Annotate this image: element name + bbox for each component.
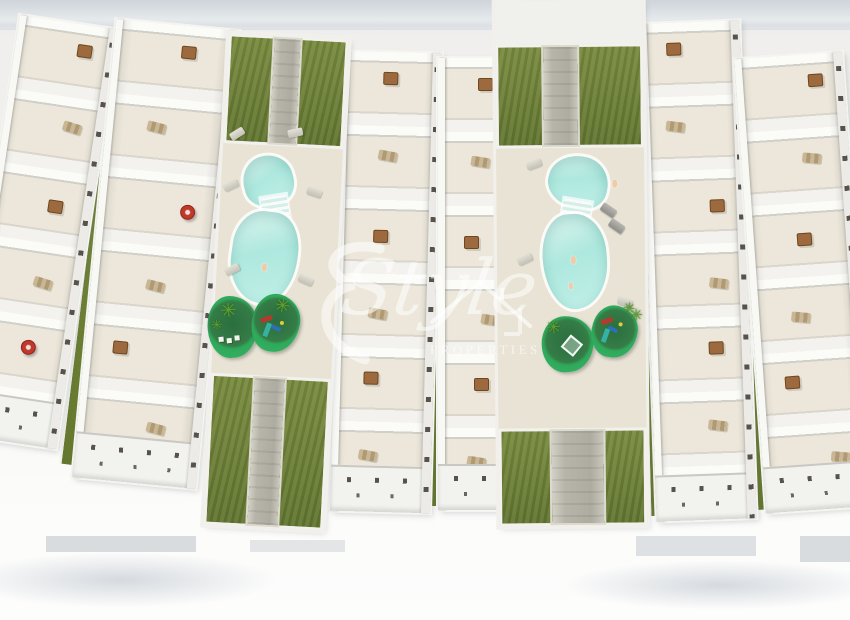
- terrace-table: [478, 78, 493, 91]
- playground-equipment: [271, 324, 282, 332]
- terrace-lounger: [709, 277, 729, 289]
- palm-tree: ✳: [219, 299, 237, 320]
- terrace-lounger: [791, 311, 811, 323]
- building-front-facade: [0, 389, 63, 449]
- courtyard-2: ✳ ✳ ✳: [495, 0, 648, 527]
- building-row-3: [330, 51, 442, 513]
- playground-equipment: [600, 317, 613, 326]
- terrace-table: [112, 340, 128, 354]
- palm-tree: ✳: [545, 319, 562, 338]
- terrace-lounger: [358, 449, 379, 462]
- terrace-table: [383, 72, 398, 85]
- sun-lounger: [599, 202, 617, 218]
- terrace-table: [708, 341, 723, 355]
- playground-equipment: [280, 321, 285, 326]
- playground-slide: [262, 322, 272, 337]
- ground-soft-shadow: [560, 560, 850, 610]
- terrace-table: [464, 236, 479, 249]
- terrace-table: [373, 230, 388, 243]
- person-on-deck: [612, 180, 617, 188]
- ground-soft-shadow: [0, 552, 280, 608]
- walkway-path: [247, 378, 285, 525]
- shadow-step: [250, 540, 345, 552]
- terrace-table: [785, 376, 801, 390]
- swimmer: [569, 282, 574, 289]
- terrace-table: [181, 46, 197, 60]
- garden-strip-bottom-1: [203, 373, 331, 531]
- sun-lounger: [525, 158, 542, 171]
- render-scene: ✳ ✳ ✳: [0, 0, 850, 620]
- shadow-step: [636, 536, 756, 556]
- parasol: [20, 339, 37, 356]
- parasol: [179, 204, 195, 220]
- pool-main-area-2: [539, 212, 610, 312]
- terrace-table: [710, 199, 725, 213]
- seat-cube: [227, 338, 232, 343]
- terrace-table: [363, 371, 378, 384]
- seat-cube: [234, 335, 239, 340]
- walkway-path: [551, 431, 604, 523]
- terrace-table: [807, 73, 823, 87]
- building-front-facade: [655, 472, 757, 521]
- sun-lounger: [608, 218, 626, 234]
- terrace-table: [666, 42, 681, 56]
- terrace-lounger: [145, 279, 166, 293]
- playground-equipment: [618, 322, 622, 326]
- palm-island-3: ✳: [539, 314, 596, 375]
- building-front-facade: [330, 465, 431, 514]
- pool-main-area-1: [225, 207, 303, 307]
- palm-tree: ✳: [211, 319, 223, 333]
- terrace-lounger: [802, 152, 822, 164]
- garden-strip-bottom-2: [498, 427, 647, 526]
- building-front-facade: [72, 431, 200, 489]
- terrace-lounger: [378, 149, 399, 162]
- sun-lounger: [297, 273, 314, 286]
- shadow-step: [46, 536, 196, 552]
- building-front-facade: [763, 460, 850, 513]
- terrace-table: [47, 199, 64, 214]
- terrace-lounger: [32, 276, 53, 291]
- terrace-lounger: [146, 120, 167, 134]
- swimmer: [261, 263, 267, 272]
- palm-tree: ✳: [273, 296, 292, 317]
- shadow-step: [800, 536, 850, 562]
- terrace-lounger: [708, 419, 728, 431]
- entrance-deck: [495, 0, 643, 47]
- terrace-lounger: [145, 422, 166, 436]
- terrace-table: [76, 44, 93, 59]
- seat-cube: [218, 337, 223, 342]
- terrace-table: [474, 378, 489, 391]
- sun-lounger: [222, 179, 239, 193]
- pergola: [561, 334, 584, 357]
- walkway-path: [543, 47, 578, 145]
- swimmer: [571, 256, 577, 264]
- terrace-lounger: [367, 307, 388, 320]
- playground-slide: [601, 328, 610, 343]
- terrace-lounger: [62, 120, 83, 135]
- terrace-table: [797, 232, 813, 246]
- terrace-lounger: [665, 121, 685, 133]
- sun-lounger: [306, 186, 323, 198]
- garden-strip-top-2: [495, 43, 644, 148]
- terrace-lounger: [470, 156, 490, 169]
- sun-lounger: [516, 253, 533, 267]
- palm-tree: ✳: [629, 307, 643, 323]
- courtyard-1: ✳ ✳ ✳: [203, 33, 349, 531]
